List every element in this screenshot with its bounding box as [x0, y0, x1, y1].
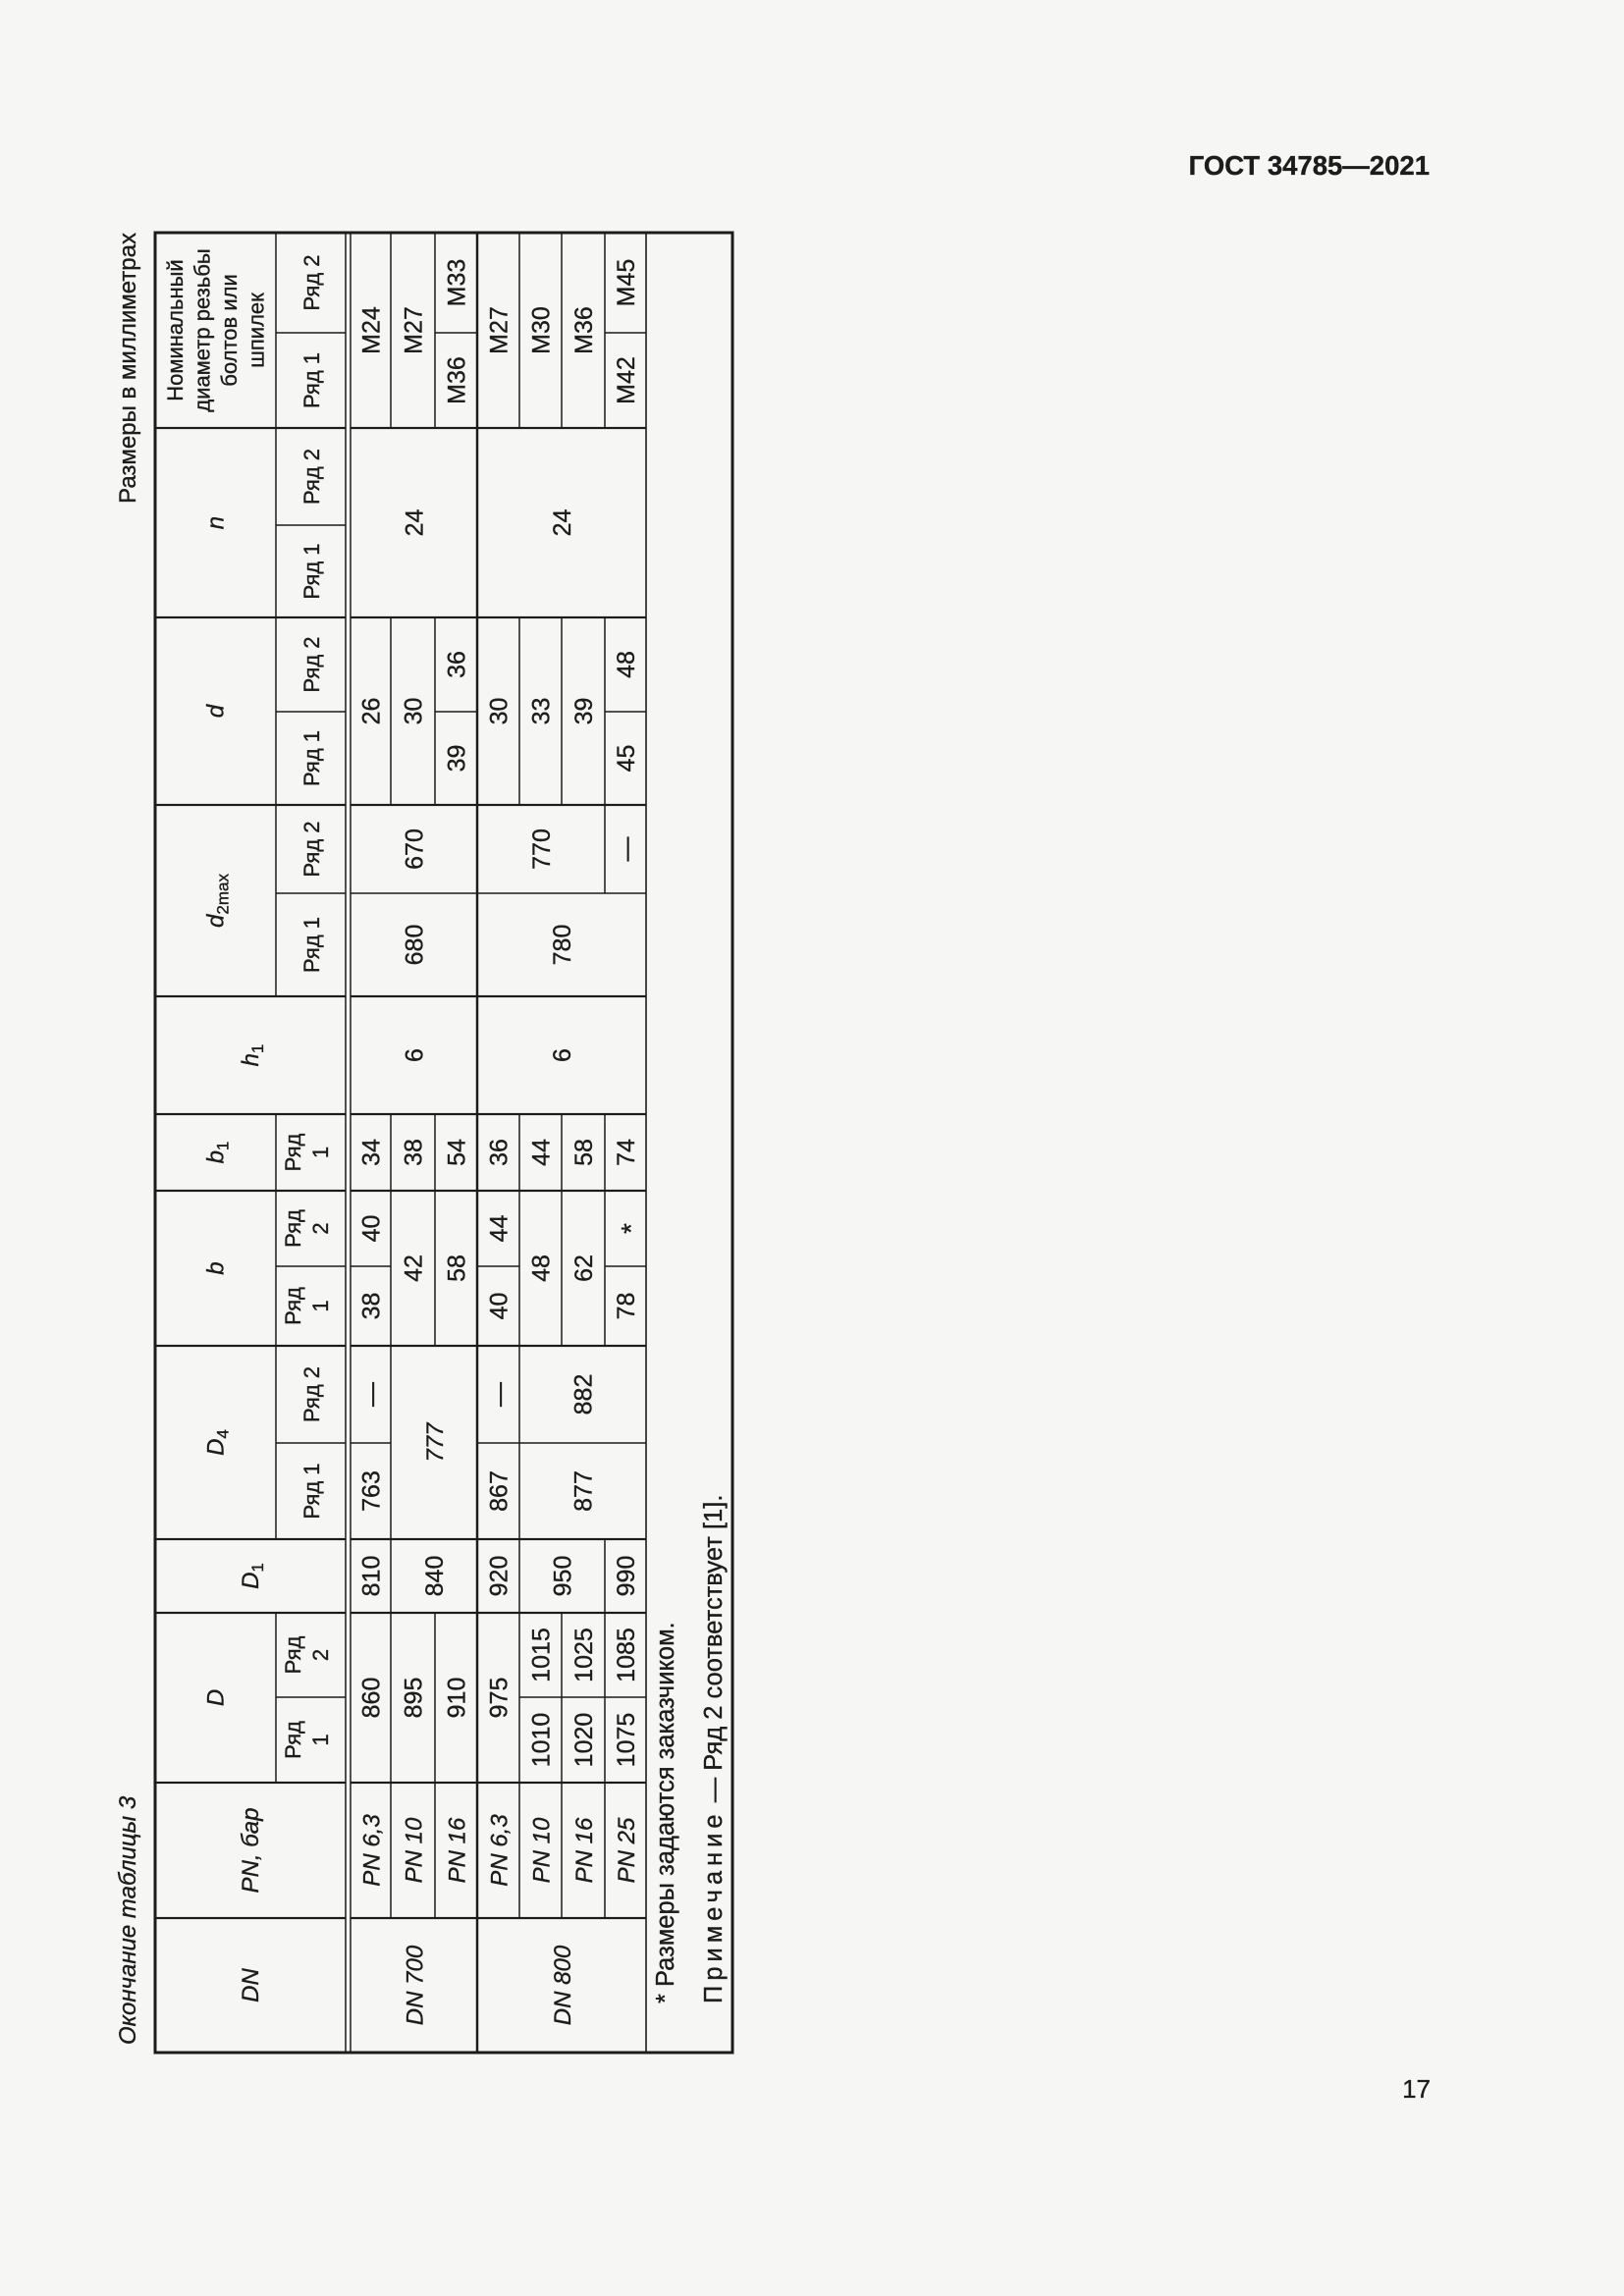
svg-text:910: 910 — [444, 1678, 471, 1719]
svg-text:DN: DN — [238, 1968, 264, 2002]
svg-text:1020: 1020 — [570, 1713, 598, 1768]
svg-text:М42: М42 — [613, 356, 640, 404]
svg-text:Ряд: Ряд — [281, 1209, 305, 1248]
svg-text:М45: М45 — [613, 259, 640, 307]
svg-text:920: 920 — [486, 1556, 514, 1597]
svg-text:6: 6 — [549, 1048, 576, 1062]
svg-text:М36: М36 — [444, 356, 471, 404]
svg-text:Ряд 1: Ряд 1 — [299, 730, 324, 786]
svg-text:Ряд 1: Ряд 1 — [299, 917, 324, 973]
svg-text:*: * — [616, 1223, 646, 1234]
svg-text:PN 6,3: PN 6,3 — [487, 1814, 514, 1887]
svg-text:Ряд 2: Ряд 2 — [299, 821, 324, 877]
svg-text:882: 882 — [570, 1374, 598, 1415]
svg-text:М36: М36 — [570, 306, 598, 354]
svg-text:1015: 1015 — [528, 1628, 556, 1682]
svg-text:877: 877 — [570, 1470, 598, 1512]
svg-text:33: 33 — [528, 698, 556, 725]
svg-text:2: 2 — [308, 1222, 333, 1234]
svg-text:Ряд: Ряд — [281, 1721, 305, 1759]
svg-text:PN 10: PN 10 — [402, 1817, 428, 1883]
svg-text:58: 58 — [444, 1255, 471, 1282]
svg-text:Ряд 2: Ряд 2 — [299, 254, 324, 310]
svg-text:DN 800: DN 800 — [550, 1945, 576, 2025]
svg-text:М27: М27 — [486, 306, 514, 354]
svg-text:PN, бар: PN, бар — [238, 1808, 264, 1894]
svg-text:777: 777 — [422, 1421, 449, 1463]
svg-text:36: 36 — [486, 1139, 514, 1166]
svg-text:670: 670 — [402, 828, 429, 870]
svg-text:48: 48 — [528, 1255, 556, 1282]
svg-text:58: 58 — [570, 1139, 598, 1166]
svg-text:48: 48 — [613, 651, 640, 678]
svg-text:PN 16: PN 16 — [445, 1817, 471, 1883]
svg-text:6: 6 — [402, 1048, 429, 1062]
svg-text:Ряд 2: Ряд 2 — [299, 1366, 324, 1422]
svg-text:38: 38 — [401, 1139, 428, 1166]
svg-text:b: b — [203, 1261, 230, 1274]
svg-text:860: 860 — [358, 1678, 386, 1719]
svg-text:d: d — [203, 704, 230, 718]
svg-text:840: 840 — [421, 1556, 449, 1597]
svg-text:PN 6,3: PN 6,3 — [359, 1814, 386, 1887]
svg-text:диаметр резьбы: диаметр резьбы — [190, 248, 215, 411]
svg-text:1025: 1025 — [570, 1628, 598, 1682]
svg-text:26: 26 — [358, 698, 386, 725]
svg-text:45: 45 — [613, 745, 640, 773]
svg-text:1085: 1085 — [613, 1628, 640, 1682]
svg-text:2: 2 — [308, 1649, 333, 1661]
svg-text:* Размеры задаются заказчиком.: * Размеры задаются заказчиком. — [652, 1622, 679, 2003]
svg-text:1010: 1010 — [528, 1713, 556, 1768]
svg-text:1: 1 — [308, 1300, 333, 1311]
svg-text:950: 950 — [550, 1556, 577, 1597]
svg-text:Ряд: Ряд — [281, 1133, 305, 1171]
svg-text:Ряд: Ряд — [281, 1635, 305, 1674]
svg-text:30: 30 — [486, 698, 514, 725]
svg-text:n: n — [203, 516, 230, 529]
svg-text:Ряд 1: Ряд 1 — [299, 352, 324, 408]
svg-text:810: 810 — [358, 1556, 386, 1597]
svg-text:Ряд: Ряд — [281, 1287, 305, 1325]
svg-text:D: D — [203, 1689, 230, 1706]
svg-text:34: 34 — [358, 1139, 386, 1166]
svg-text:17: 17 — [1402, 2074, 1431, 2104]
svg-text:40: 40 — [486, 1293, 514, 1320]
svg-text:39: 39 — [444, 745, 471, 773]
svg-text:44: 44 — [528, 1139, 556, 1166]
svg-text:867: 867 — [486, 1470, 514, 1512]
svg-text:62: 62 — [570, 1255, 598, 1282]
svg-text:Окончание таблицы 3: Окончание таблицы 3 — [115, 1795, 141, 2045]
svg-text:780: 780 — [549, 925, 576, 966]
svg-text:44: 44 — [486, 1215, 514, 1243]
svg-text:36: 36 — [444, 651, 471, 678]
svg-text:39: 39 — [570, 698, 598, 725]
svg-text:680: 680 — [402, 925, 429, 966]
svg-text:Номинальный: Номинальный — [163, 259, 188, 400]
svg-text:24: 24 — [549, 509, 576, 537]
svg-text:770: 770 — [528, 828, 556, 870]
svg-text:ГОСТ 34785—2021: ГОСТ 34785—2021 — [1189, 150, 1430, 181]
svg-text:1: 1 — [308, 1734, 333, 1745]
svg-text:—: — — [486, 1382, 514, 1407]
svg-text:PN 25: PN 25 — [614, 1817, 640, 1883]
svg-text:54: 54 — [444, 1139, 471, 1166]
svg-text:74: 74 — [613, 1139, 640, 1166]
svg-text:78: 78 — [613, 1293, 640, 1320]
svg-text:PN 10: PN 10 — [529, 1817, 556, 1883]
svg-text:—: — — [613, 837, 640, 862]
svg-text:990: 990 — [613, 1556, 640, 1597]
svg-text:24: 24 — [402, 509, 429, 537]
svg-text:1: 1 — [308, 1147, 333, 1158]
svg-text:М33: М33 — [444, 259, 471, 307]
svg-text:Примечание — Ряд 2 соответству: Примечание — Ряд 2 соответствует [1]. — [700, 1495, 728, 2003]
svg-text:Ряд 2: Ряд 2 — [299, 449, 324, 505]
svg-text:Ряд 1: Ряд 1 — [299, 1463, 324, 1519]
svg-text:Ряд 2: Ряд 2 — [299, 636, 324, 692]
svg-text:38: 38 — [358, 1293, 386, 1320]
svg-text:PN 16: PN 16 — [571, 1817, 598, 1883]
svg-text:42: 42 — [401, 1255, 428, 1282]
svg-text:М27: М27 — [401, 306, 428, 354]
svg-text:40: 40 — [358, 1215, 386, 1243]
svg-text:DN 700: DN 700 — [403, 1945, 429, 2025]
svg-text:895: 895 — [401, 1678, 428, 1719]
svg-text:М30: М30 — [528, 306, 556, 354]
svg-text:болтов или: болтов или — [217, 274, 242, 386]
svg-text:763: 763 — [358, 1470, 386, 1512]
svg-text:1075: 1075 — [613, 1713, 640, 1768]
svg-text:30: 30 — [401, 698, 428, 725]
svg-text:—: — — [358, 1382, 386, 1407]
svg-text:М24: М24 — [358, 306, 386, 354]
svg-text:Ряд 1: Ряд 1 — [299, 543, 324, 599]
svg-text:975: 975 — [486, 1678, 514, 1719]
svg-text:шпилек: шпилек — [244, 293, 269, 368]
svg-text:Размеры в миллиметрах: Размеры в миллиметрах — [115, 233, 141, 504]
